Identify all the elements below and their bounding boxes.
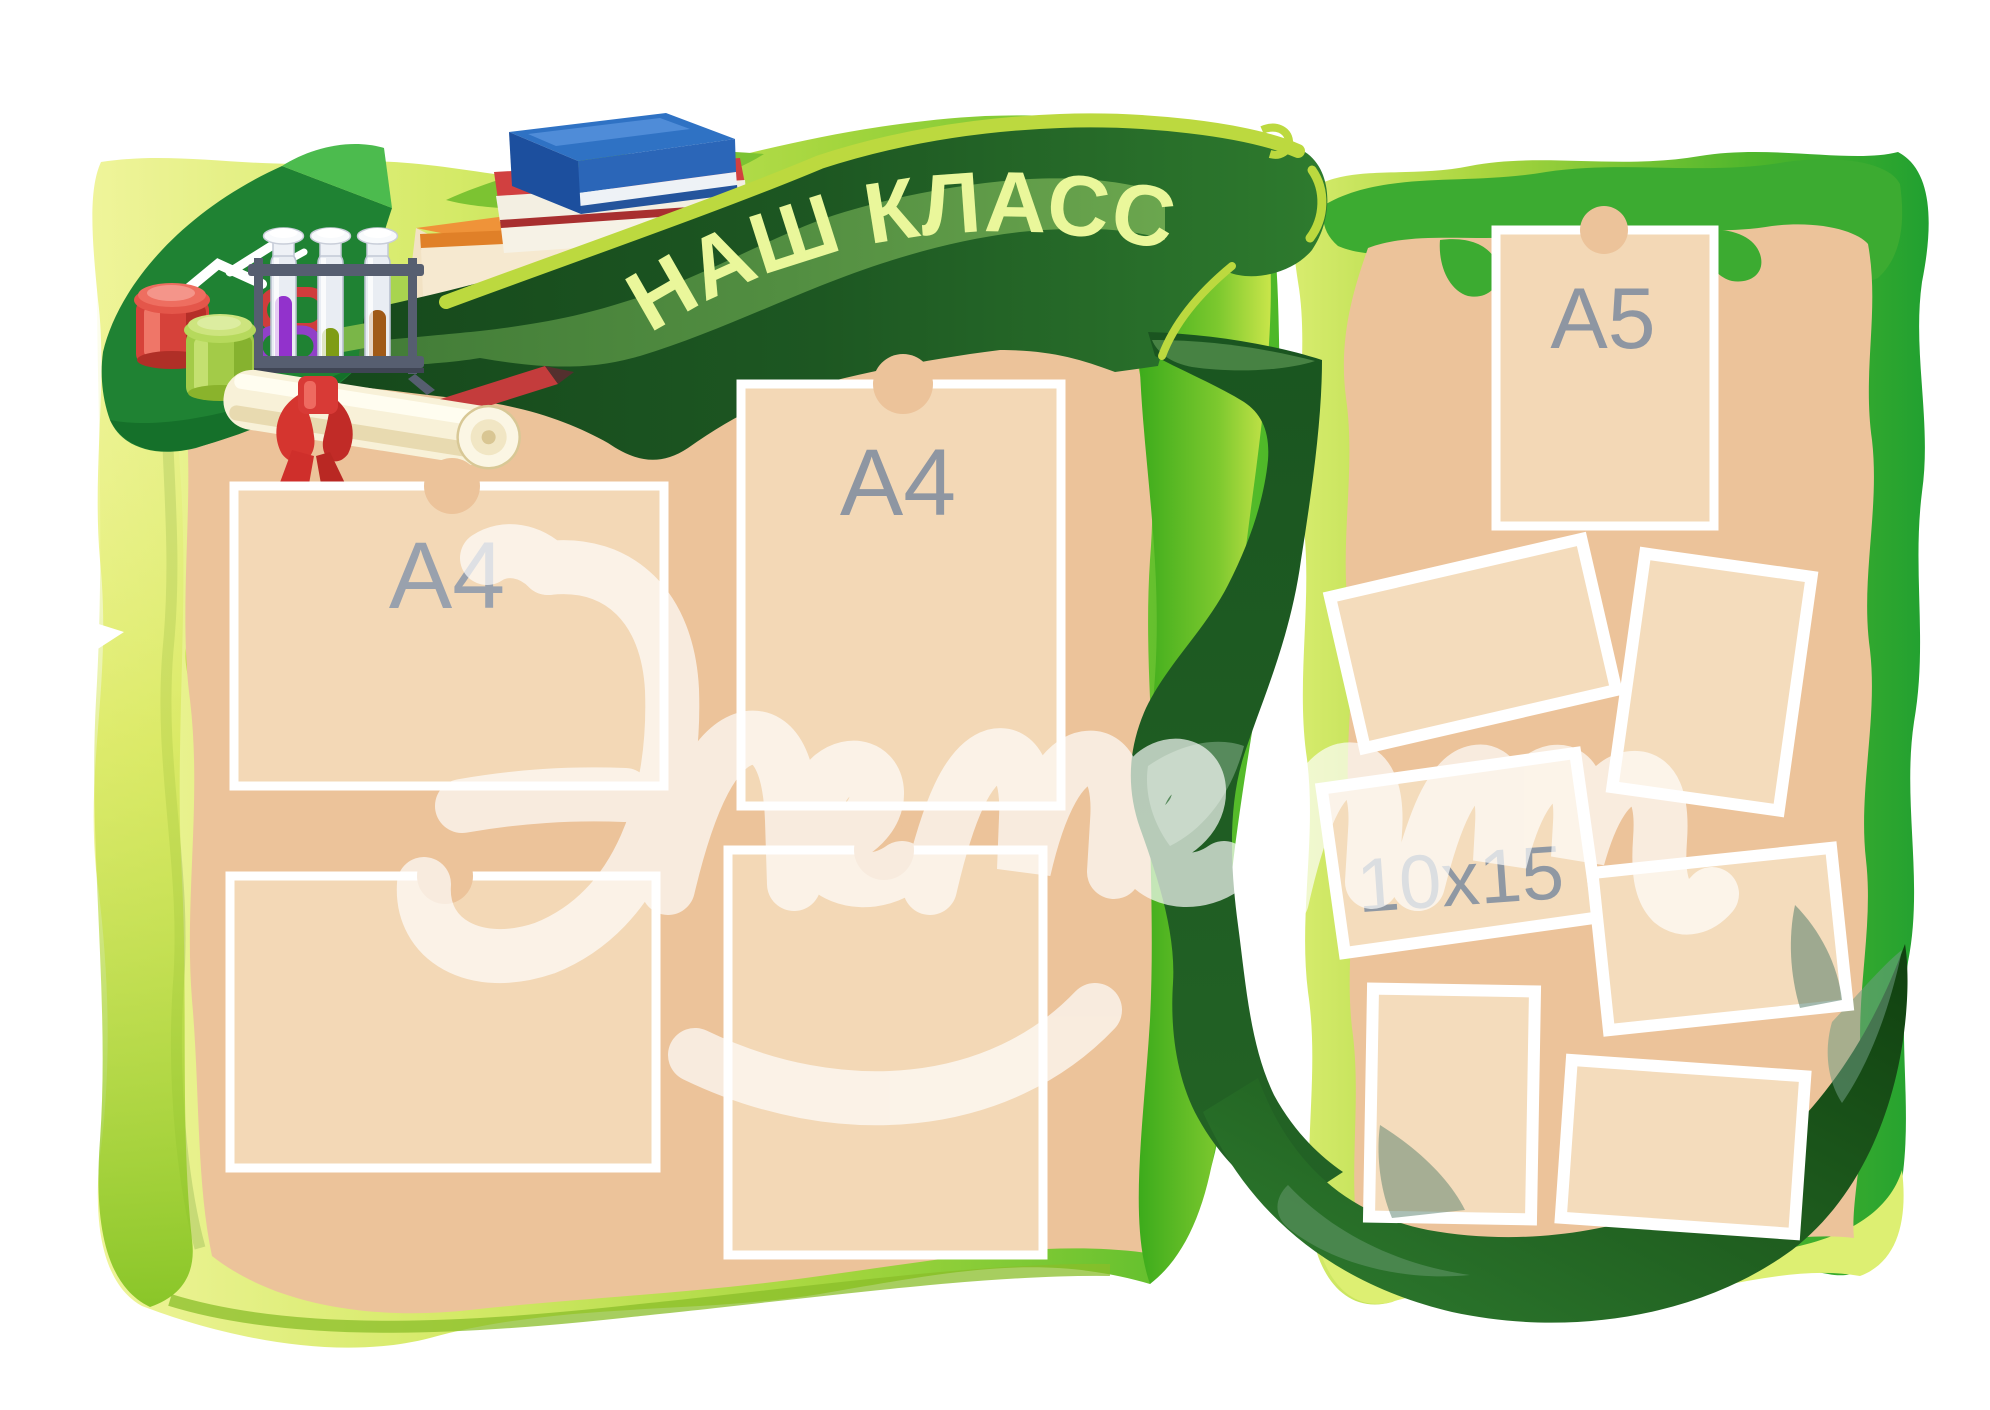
svg-text:A4: A4 bbox=[840, 430, 956, 536]
svg-text:A5: A5 bbox=[1550, 271, 1655, 367]
